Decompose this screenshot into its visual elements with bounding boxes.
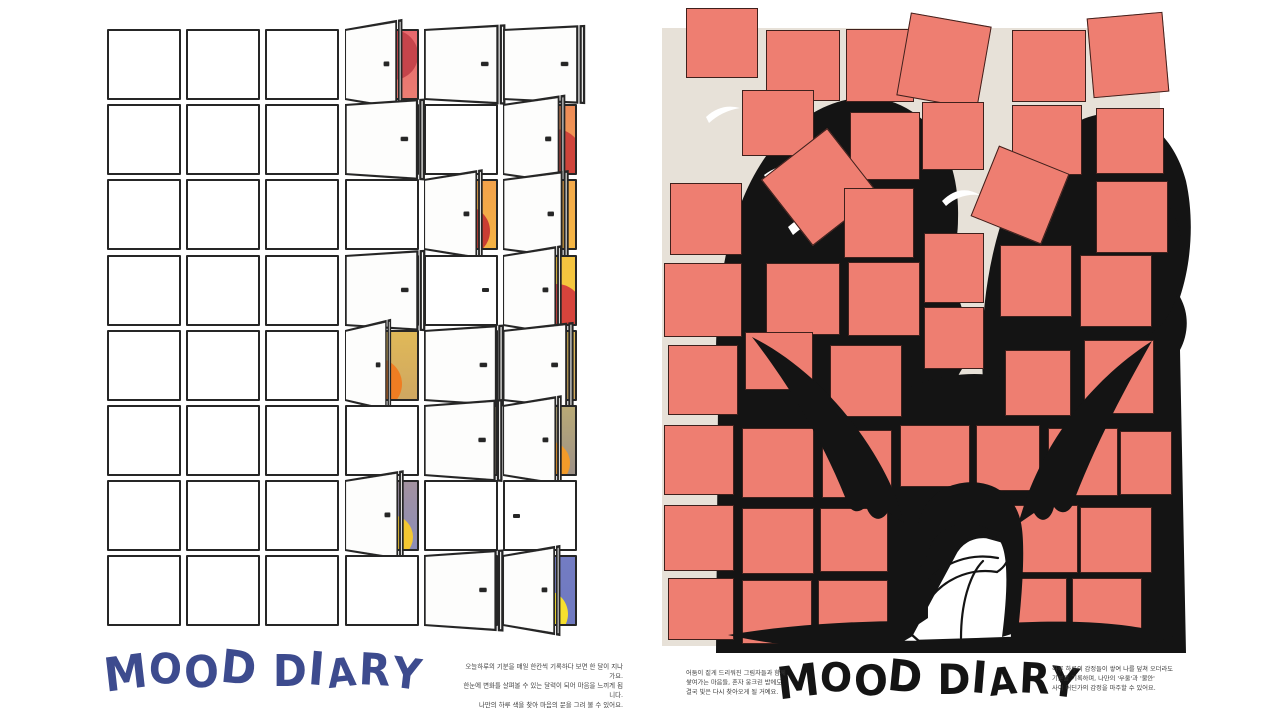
door-cell-r3-c0	[107, 255, 181, 326]
door-handle-icon	[401, 288, 409, 292]
title-letter: D	[273, 646, 309, 697]
door-handle-icon	[543, 438, 549, 443]
door-cell-r5-c0	[107, 405, 181, 476]
right-poster-title: MOOD DIARY	[778, 655, 1081, 704]
door-cell-r0-c4	[424, 29, 498, 100]
door-cell-r4-c3	[345, 330, 419, 401]
door-cell-r1-c3	[345, 104, 419, 175]
title-letter: Y	[390, 648, 426, 701]
door-cell-r3-c5	[503, 255, 577, 326]
door-cell-r1-c4	[424, 104, 498, 175]
door-handle-icon	[513, 514, 520, 518]
girl-and-wings-illustration	[660, 5, 1245, 665]
door-cell-r3-c4	[424, 255, 498, 326]
door-cell-r5-c5	[503, 405, 577, 476]
door-handle-icon	[551, 363, 558, 368]
title-letter: O	[183, 646, 222, 699]
open-door	[424, 399, 496, 481]
door-cell-r7-c5	[503, 555, 577, 626]
door-handle-icon	[545, 137, 551, 142]
title-letter: A	[325, 649, 359, 698]
title-letter: I	[306, 642, 328, 697]
open-door	[345, 99, 418, 180]
door-cell-r0-c5	[503, 29, 577, 100]
mood-diary-poster-collage: MOOD DIARY 오늘하루의 기분을 매일 한칸씩 기록하다 보면 한 달이…	[0, 0, 1280, 720]
open-door	[503, 396, 556, 485]
open-door	[503, 25, 578, 104]
title-letter: O	[147, 644, 185, 695]
open-door	[345, 320, 387, 411]
open-door	[345, 250, 419, 331]
door-cell-r0-c2	[265, 29, 339, 100]
open-door	[424, 325, 497, 406]
door-cell-r5-c3	[345, 405, 419, 476]
door-cell-r4-c1	[186, 330, 260, 401]
door-handle-icon	[463, 212, 469, 217]
door-cell-r7-c4	[424, 555, 498, 626]
door-cell-r0-c3	[345, 29, 419, 100]
door-handle-icon	[481, 62, 489, 66]
title-letter: R	[1018, 653, 1052, 704]
left-poster-title: MOOD DIARY	[105, 646, 424, 697]
door-cell-r6-c0	[107, 480, 181, 551]
door-cell-r1-c5	[503, 104, 577, 175]
door-cell-r6-c5	[503, 480, 577, 551]
left-poster: MOOD DIARY 오늘하루의 기분을 매일 한칸씩 기록하다 보면 한 달이…	[85, 10, 630, 715]
door-handle-icon	[482, 288, 489, 292]
door-cell-r7-c1	[186, 555, 260, 626]
door-cell-r4-c2	[265, 330, 339, 401]
open-door	[503, 246, 556, 335]
door-cell-r3-c2	[265, 255, 339, 326]
title-letter: R	[358, 644, 394, 697]
title-letter: A	[987, 658, 1020, 705]
title-letter: D	[937, 655, 971, 704]
door-cell-r2-c2	[265, 179, 339, 250]
door-cell-r2-c4	[424, 179, 498, 250]
open-door	[345, 20, 397, 109]
door-cell-r1-c1	[186, 104, 260, 175]
door-cell-r0-c1	[186, 29, 260, 100]
door-cell-r4-c0	[107, 330, 181, 401]
wing-left	[752, 337, 904, 523]
title-letter: I	[969, 651, 990, 704]
door-handle-icon	[479, 363, 487, 367]
door-cell-r5-c2	[265, 405, 339, 476]
door-cell-r3-c3	[345, 255, 419, 326]
door-cell-r7-c2	[265, 555, 339, 626]
title-letter: O	[852, 655, 889, 706]
door-cell-r4-c5	[503, 330, 577, 401]
door-handle-icon	[561, 62, 569, 66]
door-handle-icon	[400, 137, 408, 141]
door-cell-r6-c4	[424, 480, 498, 551]
right-poster-caption-right: 하루 하루의 감정들이 쌓여 나를 덮쳐 오더라도 기분을 기록하며, 나만의 …	[1052, 665, 1177, 693]
door-cell-r1-c2	[265, 104, 339, 175]
door-cell-r2-c1	[186, 179, 260, 250]
door-cell-r1-c0	[107, 104, 181, 175]
door-cell-r7-c0	[107, 555, 181, 626]
door-cell-r6-c1	[186, 480, 260, 551]
girl-figure	[900, 482, 1023, 642]
door-handle-icon	[542, 588, 548, 593]
title-letter: M	[101, 644, 152, 704]
door-handle-icon	[543, 288, 549, 293]
door-cell-r5-c4	[424, 405, 498, 476]
door-handle-icon	[375, 363, 380, 368]
girl-hair-strand	[916, 563, 930, 626]
right-poster-caption-left: 어둠이 짙게 드리워진 그림자들과 함께 쌓여가는 마음들, 혼자 웅크린 밤에…	[686, 669, 803, 697]
door-cell-r4-c4	[424, 330, 498, 401]
left-poster-caption: 오늘하루의 기분을 매일 한칸씩 기록하다 보면 한 달이 지나가요. 한눈에 …	[463, 662, 623, 710]
door-handle-icon	[478, 438, 485, 443]
door-cell-r2-c3	[345, 179, 419, 250]
open-door	[424, 25, 499, 105]
open-door	[345, 471, 398, 560]
door-cell-r3-c1	[186, 255, 260, 326]
door-cell-r6-c3	[345, 480, 419, 551]
door-cell-r6-c2	[265, 480, 339, 551]
door-cell-r7-c3	[345, 555, 419, 626]
door-handle-icon	[479, 589, 487, 594]
wing-right	[1018, 341, 1152, 524]
open-door	[503, 96, 560, 184]
open-door	[424, 170, 477, 259]
door-handle-icon	[383, 62, 389, 67]
open-door	[503, 546, 555, 635]
title-letter: O	[818, 653, 854, 702]
open-door	[424, 550, 497, 631]
door-calendar-grid	[107, 29, 577, 629]
right-poster: MOOD DIARY 어둠이 짙게 드리워진 그림자들과 함께 쌓여가는 마음들…	[660, 5, 1245, 717]
door-cell-r2-c0	[107, 179, 181, 250]
door-handle-icon	[384, 513, 390, 518]
door-handle-icon	[548, 212, 554, 217]
door-cell-r0-c0	[107, 29, 181, 100]
door-cell-r5-c1	[186, 405, 260, 476]
door-cell-r2-c5	[503, 179, 577, 250]
